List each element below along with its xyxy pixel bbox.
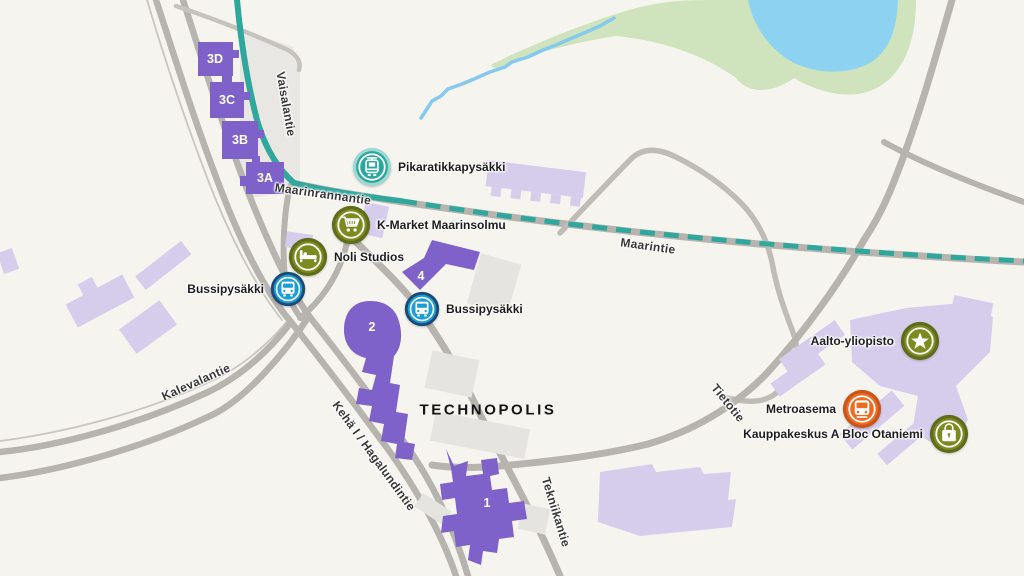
poi-label: Bussipysäkki xyxy=(187,282,264,296)
poi-kauppakeskus-a-bloc[interactable]: Kauppakeskus A Bloc Otaniemi xyxy=(743,414,969,454)
tram-stop-icon xyxy=(352,147,392,187)
poi-label: Kauppakeskus A Bloc Otaniemi xyxy=(743,427,923,441)
building-label-3c: 3C xyxy=(219,93,235,107)
poi-aalto-yliopisto[interactable]: Aalto-yliopisto xyxy=(811,321,940,361)
building-label-3b: 3B xyxy=(232,133,248,147)
star-icon xyxy=(900,321,940,361)
building-label-3d: 3D xyxy=(207,52,223,66)
shopping-bag-icon xyxy=(929,414,969,454)
bus-icon xyxy=(404,291,440,327)
map-canvas[interactable]: Vaisalantie Maarinrannantie Maarintie Ka… xyxy=(0,0,1024,576)
poi-label: Noli Studios xyxy=(334,250,404,264)
building-label-2: 2 xyxy=(369,320,376,334)
technopolis-brand-label: TECHNOPOLIS xyxy=(420,402,557,419)
map-base-art xyxy=(0,0,1024,576)
poi-pikaratikkapysakki[interactable]: Pikaratikkapysäkki xyxy=(352,147,505,187)
poi-label: Aalto-yliopisto xyxy=(811,334,894,348)
building-label-4: 4 xyxy=(418,269,425,283)
building-label-3a: 3A xyxy=(257,171,273,185)
poi-bussipysakki-west[interactable]: Bussipysäkki xyxy=(187,271,306,307)
poi-label: Bussipysäkki xyxy=(446,302,523,316)
stream xyxy=(421,18,614,118)
poi-label: K-Market Maarinsolmu xyxy=(377,218,506,232)
building-label-1: 1 xyxy=(484,496,491,510)
bus-icon xyxy=(270,271,306,307)
poi-label: Pikaratikkapysäkki xyxy=(398,160,505,174)
poi-bussipysakki-center[interactable]: Bussipysäkki xyxy=(404,291,523,327)
